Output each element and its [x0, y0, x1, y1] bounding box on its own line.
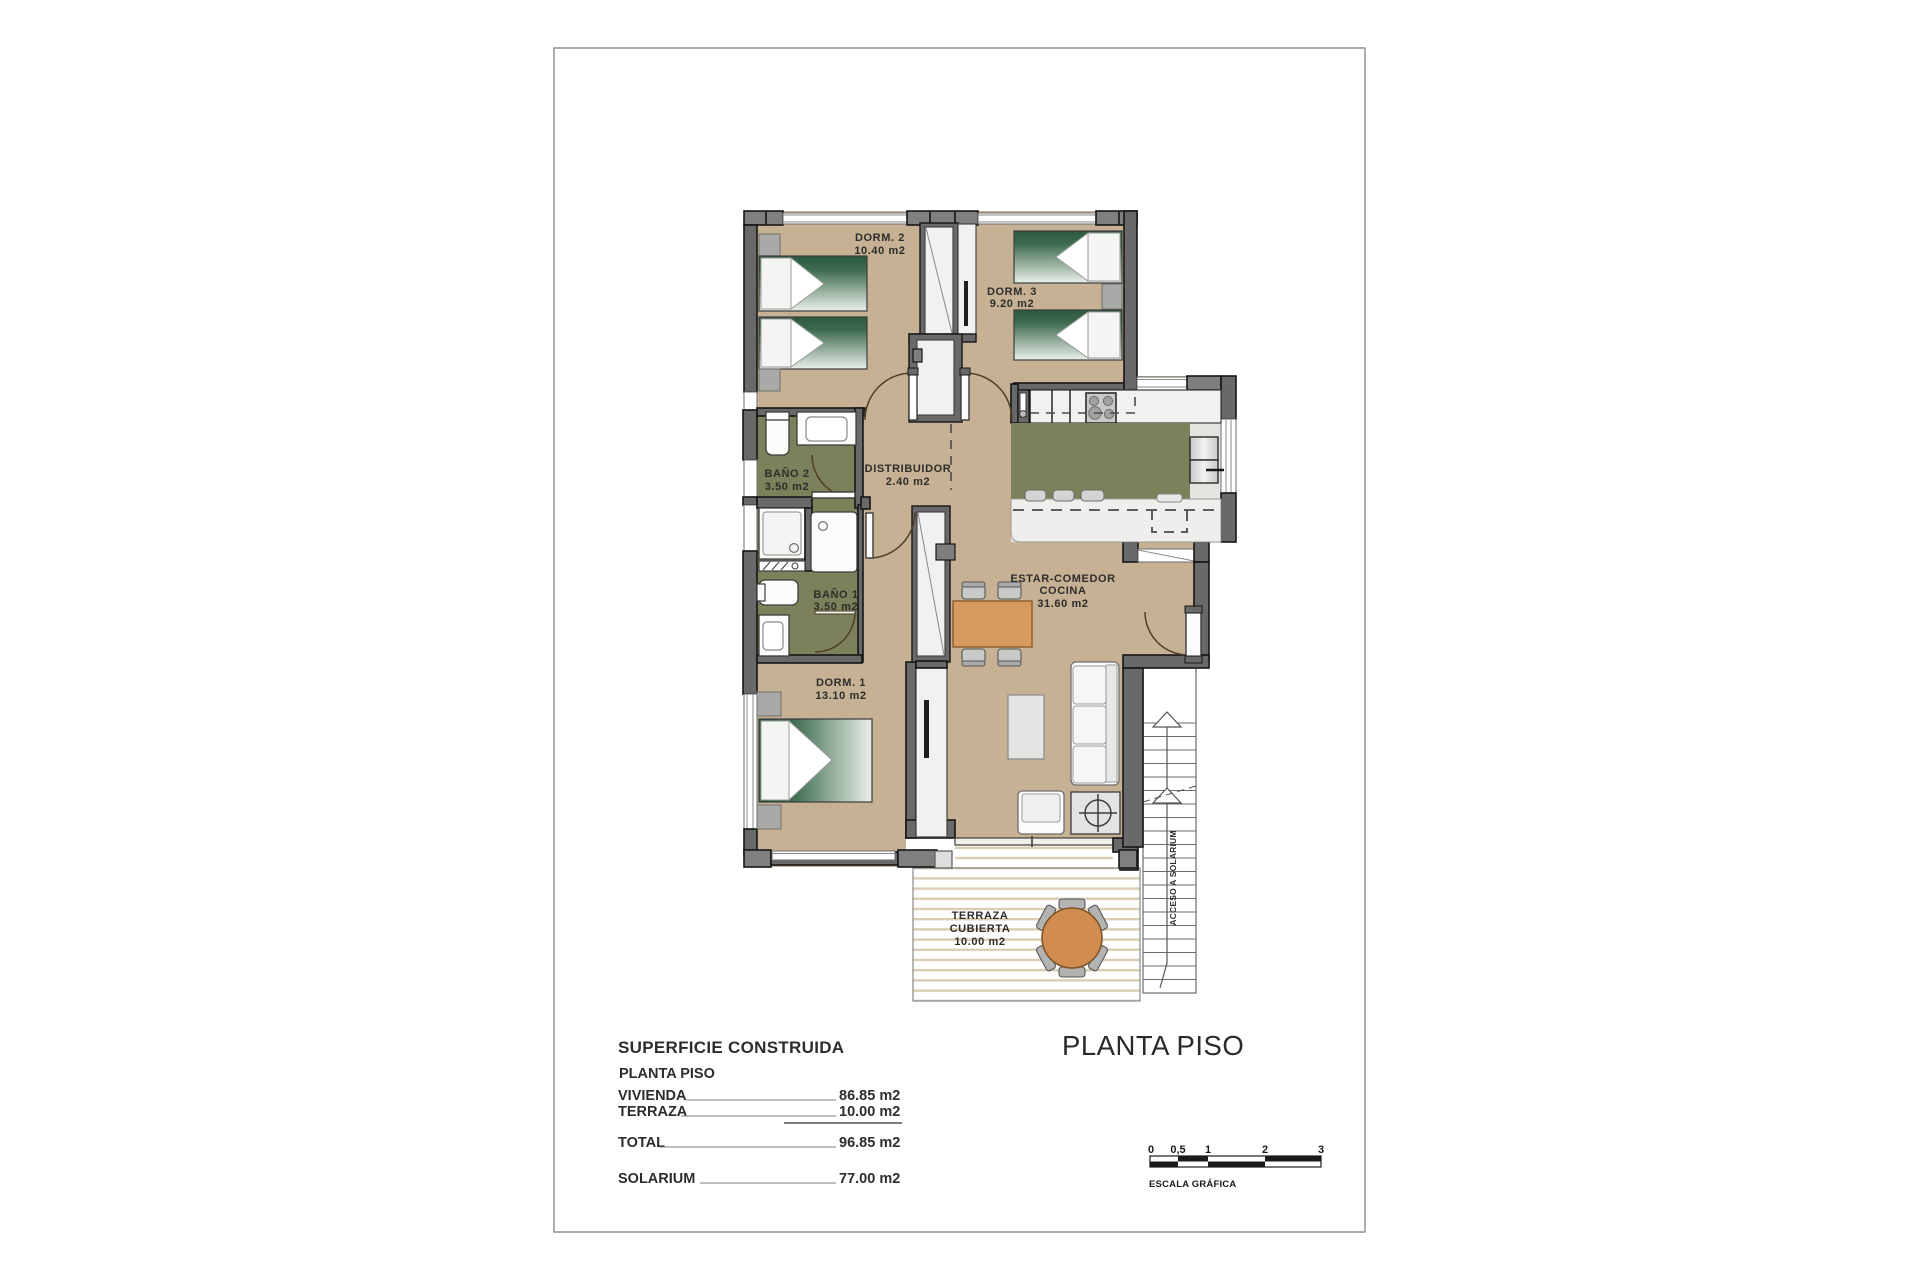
svg-text:3.50 m2: 3.50 m2	[765, 481, 810, 493]
svg-text:BAÑO 1: BAÑO 1	[813, 588, 858, 601]
svg-text:ESCALA GRÁFICA: ESCALA GRÁFICA	[1149, 1179, 1236, 1190]
svg-text:31.60 m2: 31.60 m2	[1037, 598, 1088, 610]
svg-text:3.50 m2: 3.50 m2	[814, 601, 859, 613]
svg-text:13.10 m2: 13.10 m2	[815, 690, 866, 702]
svg-text:VIVIENDA: VIVIENDA	[618, 1088, 687, 1104]
svg-text:2.40 m2: 2.40 m2	[886, 476, 931, 488]
svg-text:10.40 m2: 10.40 m2	[854, 245, 905, 257]
svg-text:10.00 m2: 10.00 m2	[839, 1104, 900, 1120]
svg-text:CUBIERTA: CUBIERTA	[950, 923, 1011, 935]
svg-text:0: 0	[1148, 1144, 1154, 1156]
svg-text:86.85 m2: 86.85 m2	[839, 1088, 900, 1104]
svg-text:96.85 m2: 96.85 m2	[839, 1135, 900, 1151]
svg-text:TERRAZA: TERRAZA	[952, 910, 1009, 922]
svg-text:2: 2	[1262, 1144, 1268, 1156]
svg-text:77.00 m2: 77.00 m2	[839, 1171, 900, 1187]
svg-text:1: 1	[1205, 1144, 1211, 1156]
svg-text:COCINA: COCINA	[1040, 585, 1087, 597]
svg-text:BAÑO 2: BAÑO 2	[764, 467, 809, 480]
svg-text:9.20 m2: 9.20 m2	[990, 298, 1035, 310]
svg-text:SOLARIUM: SOLARIUM	[618, 1171, 695, 1187]
svg-text:TERRAZA: TERRAZA	[618, 1104, 688, 1120]
svg-text:10.00 m2: 10.00 m2	[954, 936, 1005, 948]
svg-text:DORM. 1: DORM. 1	[816, 677, 866, 689]
svg-text:SUPERFICIE CONSTRUIDA: SUPERFICIE CONSTRUIDA	[618, 1038, 844, 1057]
svg-text:TOTAL: TOTAL	[618, 1135, 665, 1151]
svg-text:DISTRIBUIDOR: DISTRIBUIDOR	[865, 463, 952, 475]
svg-text:DORM. 3: DORM. 3	[987, 286, 1037, 298]
svg-text:DORM. 2: DORM. 2	[855, 232, 905, 244]
svg-text:0,5: 0,5	[1170, 1144, 1185, 1156]
svg-text:3: 3	[1318, 1144, 1324, 1156]
svg-text:ESTAR-COMEDOR: ESTAR-COMEDOR	[1010, 573, 1115, 585]
svg-text:PLANTA PISO: PLANTA PISO	[1062, 1030, 1244, 1061]
svg-text:PLANTA PISO: PLANTA PISO	[619, 1066, 715, 1082]
svg-text:ACCESO A SOLARIUM: ACCESO A SOLARIUM	[1168, 830, 1178, 925]
